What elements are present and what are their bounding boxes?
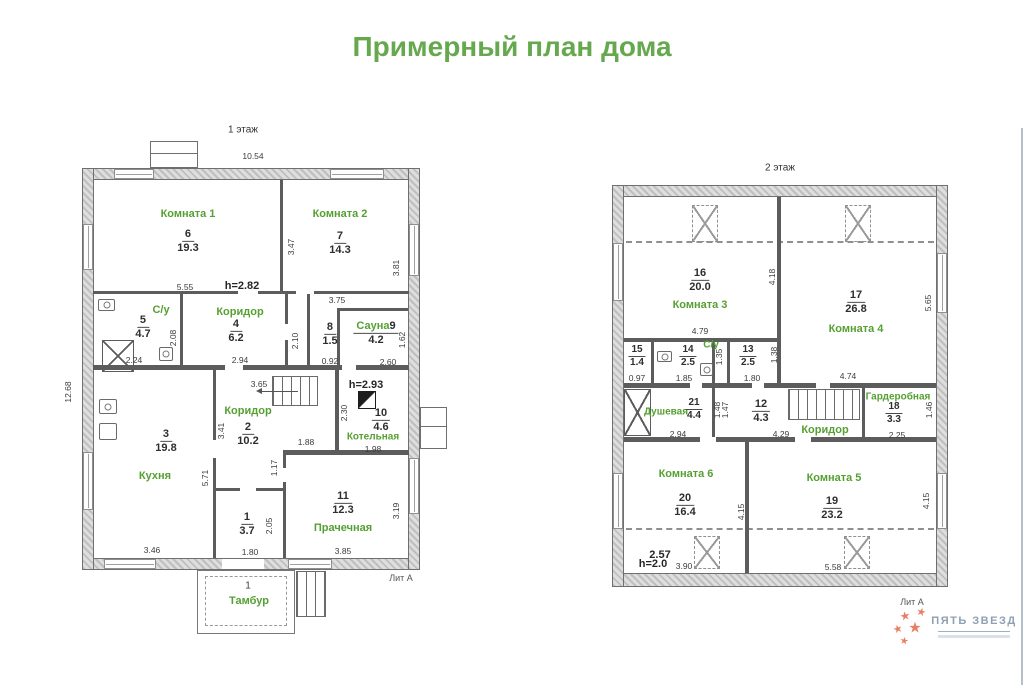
door-opening <box>690 383 702 388</box>
inner-wall <box>307 294 310 368</box>
door-opening <box>816 383 830 388</box>
inner-wall <box>283 450 286 558</box>
window <box>937 253 947 313</box>
stove-icon <box>99 423 117 440</box>
inner-wall <box>727 342 730 383</box>
window <box>104 559 156 569</box>
door-opening <box>296 290 314 295</box>
room-number-area: 15 1.4 <box>628 344 645 368</box>
dimension: 3.81 <box>391 260 401 277</box>
dimension: 2.25 <box>889 430 906 440</box>
star-icon: ★ <box>908 621 921 636</box>
wall <box>612 573 948 587</box>
room-number-area: 3 19.8 <box>155 428 176 454</box>
floor-plan-page: Примерный план дома 1 этаж 10.54 12.68 <box>0 0 1024 685</box>
star-icon: ★ <box>899 636 910 647</box>
dimension: 3.19 <box>391 503 401 520</box>
room-number-area: 14 2.5 <box>679 344 696 368</box>
room-name: Сауна <box>356 320 389 332</box>
dimension: 0.92 <box>322 356 339 366</box>
sink-icon <box>98 299 115 311</box>
roof-hatch-icon <box>694 536 720 569</box>
kitchen-sink-icon <box>99 399 117 414</box>
dimension: 1.17 <box>269 460 279 477</box>
building-letter: Лит А <box>389 573 413 583</box>
room-number-area: 20 16.4 <box>674 492 695 518</box>
window <box>83 224 93 270</box>
inner-wall <box>624 338 777 342</box>
window <box>288 559 332 569</box>
room-number-area: 6 19.3 <box>177 228 198 254</box>
door-opening <box>222 559 264 569</box>
dimension: 1.47 <box>720 402 730 419</box>
window <box>937 473 947 529</box>
inner-wall <box>624 383 936 388</box>
window <box>409 458 419 514</box>
door-opening <box>342 365 356 370</box>
dimension: 4.15 <box>736 504 746 521</box>
dimension: 5.71 <box>200 470 210 487</box>
inner-wall <box>280 180 283 292</box>
dimension: 1.35 <box>714 349 724 366</box>
brand-name: ПЯТЬ ЗВЕЗД <box>931 615 1016 627</box>
room-number-area: 1 3.7 <box>239 511 254 537</box>
chimney <box>420 407 447 449</box>
room-name: Тамбур <box>229 595 269 607</box>
room-number-area: 16 20.0 <box>689 267 710 293</box>
dimension: 1.62 <box>397 332 407 349</box>
room-name: Комната 5 <box>807 472 862 484</box>
dimension: 3.47 <box>286 239 296 256</box>
toilet-icon <box>700 363 713 376</box>
dimension: 1.98 <box>365 444 382 454</box>
brand-underline <box>938 631 1010 632</box>
dimension: 2.05 <box>264 518 274 535</box>
window <box>83 452 93 510</box>
room-number-area: 7 14.3 <box>329 230 350 256</box>
door-opening <box>285 324 288 340</box>
dimension: 2.08 <box>168 330 178 347</box>
dimension: 3.65 <box>251 379 268 389</box>
floor1-height-dim: 12.68 <box>63 381 73 402</box>
sink-icon <box>657 351 672 362</box>
inner-wall <box>213 370 216 558</box>
door-opening <box>225 365 243 370</box>
stairs-icon <box>788 389 860 420</box>
room-name: Коридор <box>224 405 271 417</box>
dimension: 4.15 <box>921 493 931 510</box>
dimension: 4.18 <box>767 269 777 286</box>
inner-wall <box>180 294 183 368</box>
room-number-area: 17 26.8 <box>845 289 866 315</box>
dimension: 0.97 <box>629 373 646 383</box>
window <box>330 169 384 179</box>
ceiling-height: h=2.82 <box>225 280 260 292</box>
window <box>409 224 419 276</box>
door-opening <box>240 488 256 491</box>
dimension: 1.85 <box>676 373 693 383</box>
window <box>613 243 623 301</box>
dimension: 1.46 <box>924 402 934 419</box>
dimension: 1.80 <box>744 373 761 383</box>
window <box>114 169 154 179</box>
door-opening <box>795 437 811 442</box>
ceiling-height: h=2.0 <box>639 558 667 570</box>
room-name: Комната 1 <box>161 208 216 220</box>
room-number-area: 11 12.3 <box>332 490 353 516</box>
dimension: 3.90 <box>676 561 693 571</box>
roof-hatch-icon <box>845 205 871 242</box>
dimension: 2.24 <box>126 355 143 365</box>
inner-wall <box>862 388 865 437</box>
window <box>613 473 623 529</box>
room-number-area: 12 4.3 <box>752 398 770 424</box>
room-number-area: 10 4.6 <box>372 407 390 433</box>
dimension: 1.88 <box>298 437 315 447</box>
dimension: 2.94 <box>232 355 249 365</box>
room-number-area: Сауна9 4.2 <box>353 320 398 346</box>
dimension: 2.30 <box>339 405 349 422</box>
room-number-area: 4 6.2 <box>228 318 243 344</box>
ceiling-height: h=2.93 <box>349 379 384 391</box>
room-name: Коридор <box>801 424 848 436</box>
inner-wall <box>337 308 408 311</box>
room-name: Комната 2 <box>313 208 368 220</box>
chimney <box>150 141 198 168</box>
toilet-icon <box>159 347 173 361</box>
room-name: Комната 3 <box>673 299 728 311</box>
dimension: 4.79 <box>692 326 709 336</box>
dimension: 2.60 <box>380 357 397 367</box>
dimension: 5.55 <box>177 282 194 292</box>
dimension: 5.65 <box>923 295 933 312</box>
room-number-area: 5 4.7 <box>135 314 150 340</box>
floor2-label: 2 этаж <box>765 163 795 174</box>
room-name: Комната 4 <box>829 323 884 335</box>
page-title: Примерный план дома <box>352 31 671 63</box>
inner-wall <box>283 450 409 455</box>
room-number: 1 <box>245 581 251 592</box>
door-opening <box>700 437 716 442</box>
dimension: 3.85 <box>335 546 352 556</box>
room-name: Душевая <box>644 407 688 418</box>
dimension: 2.10 <box>290 333 300 350</box>
dimension: 3.41 <box>216 423 226 440</box>
dimension: 1.80 <box>242 547 259 557</box>
room-name: Комната 6 <box>659 468 714 480</box>
dimension: 5.58 <box>825 562 842 572</box>
dimension: 2.94 <box>670 429 687 439</box>
inner-wall <box>93 365 409 370</box>
room-number-area: 18 3.3 <box>885 401 902 425</box>
room-number-area: 2 10.2 <box>237 421 258 447</box>
wall <box>612 185 948 197</box>
roof-hatch-icon <box>844 536 870 569</box>
brand-tagline-placeholder <box>938 635 1010 638</box>
floor1-label: 1 этаж <box>228 125 258 136</box>
inner-wall <box>651 342 654 383</box>
room-name: Коридор <box>216 306 263 318</box>
star-icon: ★ <box>915 606 927 619</box>
room-name: Кухня <box>139 470 171 482</box>
door-opening <box>752 383 764 388</box>
page-edge-divider <box>1021 128 1023 685</box>
room-number-area: 8 1.5 <box>322 321 337 347</box>
roof-hatch-icon <box>692 205 718 242</box>
room-name: Прачечная <box>314 522 372 534</box>
dimension: 4.74 <box>840 371 857 381</box>
stairs-direction-arrow <box>262 391 298 392</box>
room-number-area: 21 4.4 <box>685 397 702 421</box>
door-opening <box>283 468 286 482</box>
entry-steps-icon <box>296 571 326 617</box>
room-name: С/у <box>152 304 169 316</box>
dimension: 3.46 <box>144 545 161 555</box>
room-number-area: 19 23.2 <box>821 495 842 521</box>
door-opening <box>213 440 216 458</box>
attic-slope-line <box>626 528 934 530</box>
dimension: 1.38 <box>769 347 779 364</box>
room-number-area: 13 2.5 <box>739 344 756 368</box>
room-name: Котельная <box>347 432 399 443</box>
floor1-width-dim: 10.54 <box>242 151 263 161</box>
dimension: 4.29 <box>773 429 790 439</box>
dimension: 3.75 <box>329 295 346 305</box>
